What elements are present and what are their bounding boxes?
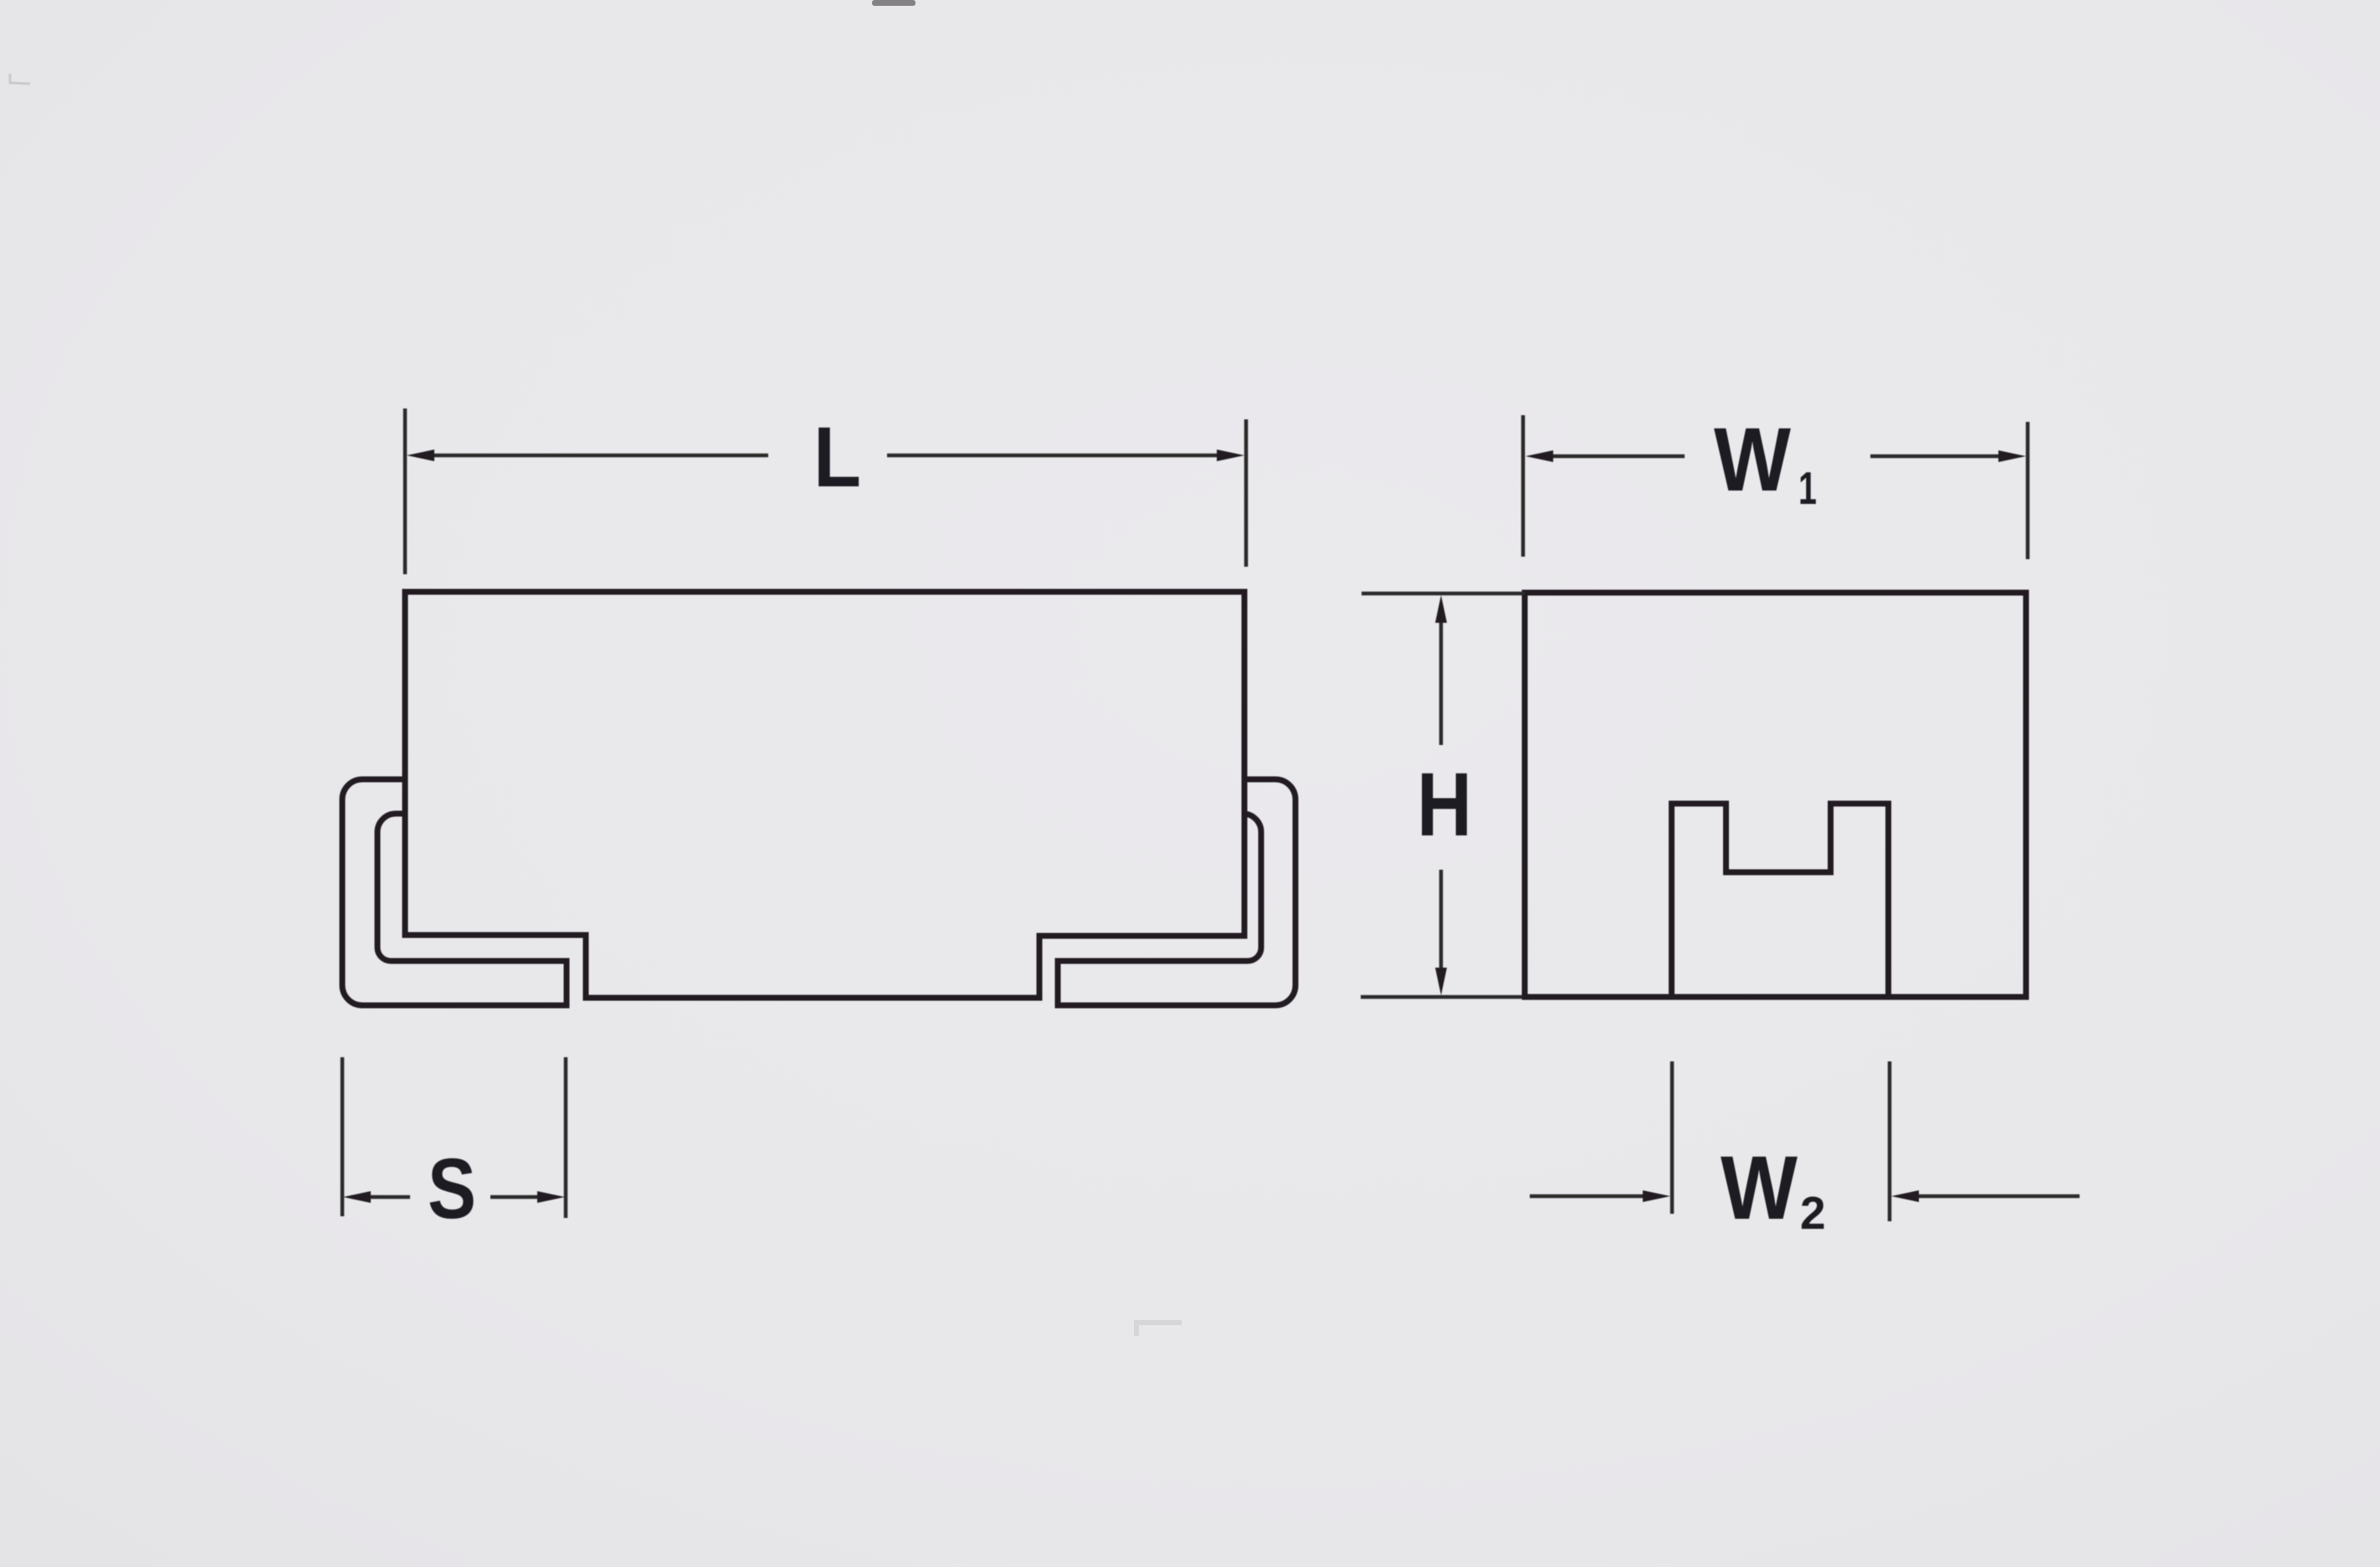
svg-text:1: 1 [1798, 462, 1817, 514]
svg-text:2: 2 [1800, 1187, 1826, 1239]
svg-text:H: H [1417, 753, 1472, 855]
svg-text:L: L [813, 409, 861, 505]
svg-text:W: W [1714, 408, 1791, 510]
svg-text:W: W [1721, 1137, 1798, 1238]
svg-text:S: S [428, 1141, 476, 1236]
